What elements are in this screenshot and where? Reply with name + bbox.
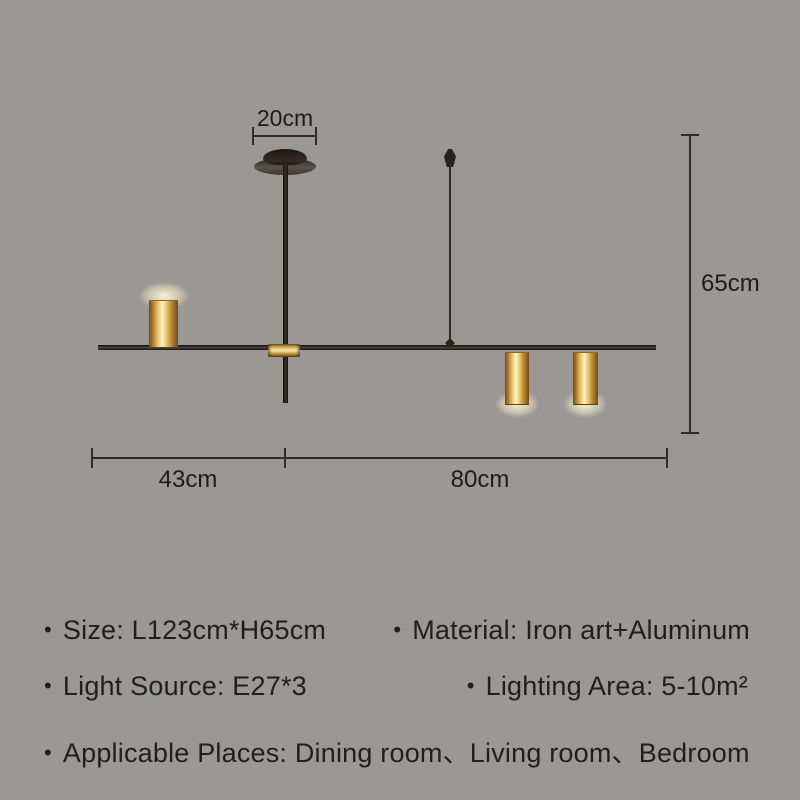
product-spec-image: 20cm 65cm 43cm 80cm •Size: L123cm*H65cm … [0,0,800,800]
canopy-width-dim-line [253,135,317,137]
height-dim-line [689,135,691,433]
bullet-icon: • [44,617,52,643]
spec-size-text: Size: L123cm*H65cm [63,615,326,645]
left-lamp-cylinder [149,300,178,348]
spec-material-text: Material: Iron art+Aluminum [412,615,750,645]
spec-light-source-text: Light Source: E27*3 [63,671,307,701]
center-brass-sleeve [268,344,300,357]
right-span-label: 80cm [420,466,540,494]
bullet-icon: • [467,673,475,699]
spec-lighting-area-text: Lighting Area: 5-10m² [486,671,748,701]
height-label: 65cm [701,270,760,298]
width-tick-left [91,448,93,468]
bullet-icon: • [44,740,52,766]
width-tick-right [666,448,668,468]
spec-light-source: •Light Source: E27*3 [44,671,307,702]
width-dim-line [92,457,668,459]
canopy-width-label: 20cm [235,105,335,132]
ceiling-canopy-cap [263,149,307,165]
bullet-icon: • [44,673,52,699]
lamp-horizontal-bar [98,345,656,350]
spec-applicable-places: •Applicable Places: Dining room、Living r… [44,731,750,770]
canopy-width-tick-left [252,127,254,145]
right-lamp-2-cylinder [573,352,598,405]
lamp-center-rod [283,164,288,403]
spec-size: •Size: L123cm*H65cm [44,615,326,646]
height-tick-top [681,134,699,136]
right-lamp-1-cylinder [505,352,529,405]
suspension-wire [449,164,451,346]
bullet-icon: • [393,617,401,643]
left-span-label: 43cm [128,466,248,494]
spec-lighting-area: •Lighting Area: 5-10m² [467,671,748,702]
canopy-width-tick-right [315,127,317,145]
width-tick-middle [284,448,286,468]
spec-applicable-places-text: Applicable Places: Dining room、Living ro… [63,738,750,768]
spec-material: •Material: Iron art+Aluminum [393,615,750,646]
height-tick-bottom [681,432,699,434]
